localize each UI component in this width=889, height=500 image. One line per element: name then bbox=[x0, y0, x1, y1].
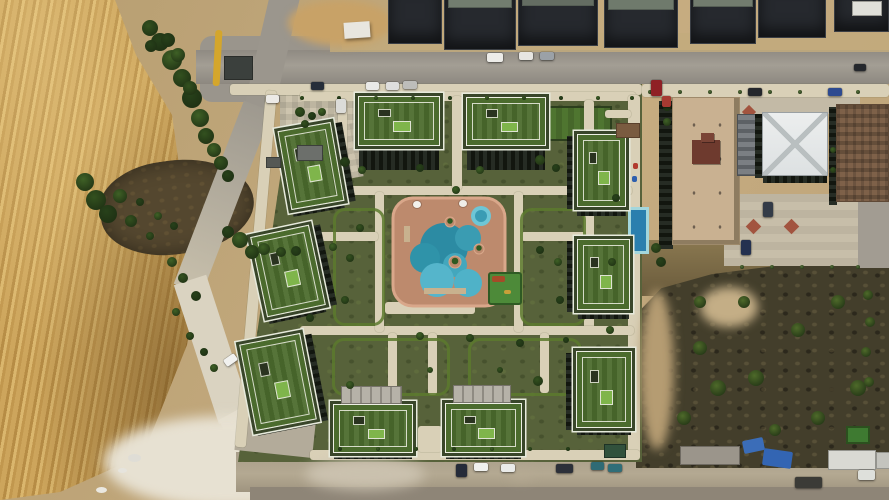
tree bbox=[191, 291, 201, 301]
tree bbox=[411, 96, 415, 100]
tree bbox=[154, 212, 162, 220]
building-facade bbox=[359, 146, 439, 170]
building-facade bbox=[567, 241, 578, 312]
dirt-strip bbox=[640, 290, 674, 450]
tree bbox=[191, 109, 209, 127]
tree bbox=[770, 265, 774, 269]
pergola bbox=[616, 123, 640, 138]
tree bbox=[559, 96, 563, 100]
apartment-block-east-3 bbox=[576, 351, 632, 428]
car bbox=[266, 95, 279, 103]
island-palm-tree bbox=[476, 245, 482, 251]
scene-objects-layer bbox=[0, 0, 889, 500]
tree bbox=[414, 447, 418, 451]
tree bbox=[416, 164, 424, 172]
container bbox=[876, 452, 889, 469]
dumpster bbox=[604, 444, 626, 458]
city-block-2 bbox=[444, 0, 516, 50]
car bbox=[474, 463, 488, 471]
tree bbox=[811, 411, 825, 425]
tree bbox=[535, 155, 545, 165]
debris bbox=[118, 468, 127, 473]
tree bbox=[301, 120, 309, 128]
tan-roof bbox=[672, 97, 740, 245]
building-facade bbox=[763, 175, 828, 183]
tree bbox=[207, 143, 221, 157]
tree bbox=[476, 166, 484, 174]
tree bbox=[740, 265, 744, 269]
car bbox=[795, 477, 822, 488]
utility-box bbox=[266, 157, 281, 168]
debris bbox=[96, 487, 107, 493]
lap-pool bbox=[628, 207, 649, 254]
car bbox=[828, 88, 842, 96]
roof-penthouse-band bbox=[448, 0, 513, 8]
car bbox=[763, 202, 773, 217]
tree bbox=[170, 222, 178, 230]
tree bbox=[346, 254, 354, 262]
pallets bbox=[680, 446, 740, 465]
tree bbox=[338, 447, 342, 451]
apartment-block-east-2 bbox=[577, 239, 630, 310]
tree bbox=[452, 447, 456, 451]
tree bbox=[183, 81, 197, 95]
tree bbox=[556, 296, 564, 304]
tree bbox=[830, 265, 834, 269]
car bbox=[501, 464, 515, 472]
tree bbox=[864, 377, 874, 387]
tree bbox=[374, 96, 378, 100]
tree bbox=[99, 205, 117, 223]
utility-box bbox=[297, 145, 323, 161]
roof-penthouse-band bbox=[522, 0, 594, 6]
tree bbox=[651, 243, 661, 253]
play-structure bbox=[492, 276, 505, 282]
tree bbox=[356, 224, 364, 232]
tree bbox=[76, 173, 94, 191]
tree bbox=[427, 367, 433, 373]
tree bbox=[516, 339, 524, 347]
green-roof bbox=[333, 404, 413, 453]
tree bbox=[748, 370, 764, 386]
building-facade bbox=[566, 353, 577, 430]
tree bbox=[376, 447, 380, 451]
tree bbox=[830, 167, 836, 173]
green-roof bbox=[466, 97, 546, 146]
hip-roof bbox=[762, 112, 828, 176]
tree bbox=[146, 232, 154, 240]
car bbox=[858, 470, 875, 480]
tree bbox=[485, 96, 489, 100]
tree bbox=[738, 90, 742, 94]
dust bbox=[305, 458, 425, 490]
red-item bbox=[633, 163, 638, 169]
tree bbox=[528, 447, 532, 451]
tree bbox=[710, 380, 726, 396]
blue-item bbox=[632, 176, 637, 182]
car bbox=[456, 464, 467, 477]
car bbox=[336, 99, 346, 113]
tree bbox=[708, 90, 712, 94]
building-facade bbox=[578, 309, 630, 319]
play-structure bbox=[504, 290, 511, 294]
apartment-block-south-2 bbox=[445, 403, 522, 453]
building-facade bbox=[334, 453, 412, 459]
tree bbox=[232, 232, 248, 248]
brown-roof bbox=[836, 104, 889, 202]
car bbox=[519, 52, 533, 60]
tree bbox=[222, 226, 234, 238]
tree bbox=[276, 247, 286, 257]
garden-plot bbox=[846, 426, 870, 444]
dark-roof bbox=[758, 0, 826, 38]
dirt-patch bbox=[700, 287, 758, 327]
tree bbox=[798, 90, 802, 94]
loungers bbox=[404, 226, 410, 242]
dark-roof bbox=[388, 0, 442, 44]
car bbox=[366, 82, 379, 90]
tree bbox=[694, 296, 706, 308]
car bbox=[608, 464, 622, 472]
white-hip-roof-building bbox=[762, 112, 828, 176]
tree bbox=[630, 96, 634, 100]
tree bbox=[536, 246, 544, 254]
roof-box bbox=[852, 1, 882, 16]
tree bbox=[346, 381, 354, 389]
tree bbox=[452, 186, 460, 194]
tree bbox=[214, 156, 228, 170]
tree bbox=[656, 257, 666, 267]
tree bbox=[522, 96, 526, 100]
roof-penthouse-band bbox=[693, 0, 752, 7]
tree bbox=[768, 90, 772, 94]
tree bbox=[416, 332, 424, 340]
city-block-6 bbox=[758, 0, 826, 38]
tree bbox=[596, 96, 600, 100]
tree bbox=[341, 296, 349, 304]
tree bbox=[856, 90, 860, 94]
tree bbox=[831, 295, 845, 309]
tree bbox=[222, 170, 234, 182]
tree bbox=[663, 118, 671, 126]
tree bbox=[300, 96, 304, 100]
tree bbox=[566, 447, 570, 451]
debris bbox=[128, 454, 141, 462]
green-roof bbox=[358, 96, 440, 146]
tree bbox=[258, 243, 270, 255]
office-building bbox=[672, 97, 740, 245]
tree bbox=[533, 376, 543, 386]
tree bbox=[200, 348, 208, 356]
aerial-photo-canvas bbox=[0, 0, 889, 500]
tree bbox=[125, 215, 137, 227]
car bbox=[403, 81, 417, 89]
red-roof bbox=[692, 140, 720, 164]
tree bbox=[554, 258, 562, 266]
umbrella bbox=[413, 201, 421, 208]
green-roof bbox=[577, 239, 630, 310]
tree bbox=[738, 296, 750, 308]
tree bbox=[171, 48, 185, 62]
tree bbox=[497, 367, 503, 373]
tree bbox=[769, 424, 781, 436]
tree bbox=[172, 308, 180, 316]
island-palm-tree bbox=[447, 218, 453, 224]
building-facade bbox=[577, 206, 625, 216]
red-roof bbox=[701, 133, 714, 142]
tree bbox=[863, 290, 873, 300]
city-block-1 bbox=[388, 0, 442, 44]
tree bbox=[178, 273, 188, 283]
apartment-block-south-1 bbox=[333, 404, 413, 453]
swimming-pool-lobe bbox=[475, 210, 487, 222]
apartment-block-top-1 bbox=[358, 96, 440, 146]
tree bbox=[800, 265, 804, 269]
tree bbox=[856, 265, 860, 269]
car bbox=[386, 82, 399, 90]
building-facade bbox=[567, 136, 578, 209]
city-block-3 bbox=[518, 0, 598, 46]
green-roof bbox=[445, 403, 522, 453]
tree bbox=[563, 337, 569, 343]
tree bbox=[210, 364, 218, 372]
tree bbox=[608, 258, 616, 266]
umbrella bbox=[459, 200, 467, 207]
building-facade bbox=[577, 427, 632, 435]
roof-penthouse-band bbox=[608, 0, 675, 10]
tree bbox=[136, 198, 144, 206]
car bbox=[662, 96, 671, 107]
tree bbox=[308, 112, 316, 120]
tree bbox=[830, 147, 836, 153]
tree bbox=[291, 246, 301, 256]
tree bbox=[466, 334, 474, 342]
container bbox=[828, 450, 876, 470]
tree bbox=[693, 341, 707, 355]
car bbox=[311, 82, 324, 90]
tree bbox=[358, 166, 366, 174]
tree bbox=[161, 33, 175, 47]
tree bbox=[865, 317, 875, 327]
tree bbox=[552, 164, 560, 172]
car bbox=[540, 52, 554, 60]
tree bbox=[167, 257, 177, 267]
tree bbox=[329, 243, 337, 251]
tree bbox=[318, 108, 326, 116]
island-palm-tree bbox=[452, 258, 459, 265]
tree bbox=[606, 326, 614, 334]
tree bbox=[791, 323, 805, 337]
loungers bbox=[424, 288, 466, 294]
tree bbox=[677, 411, 691, 425]
dark-roof bbox=[518, 0, 598, 46]
car bbox=[854, 64, 866, 71]
tree bbox=[306, 314, 314, 322]
tree bbox=[340, 157, 350, 167]
tree bbox=[448, 96, 452, 100]
city-block-4 bbox=[604, 0, 678, 48]
tree bbox=[145, 40, 157, 52]
apartment-block-top-2 bbox=[466, 97, 546, 146]
green-roof bbox=[576, 351, 632, 428]
car bbox=[556, 464, 573, 473]
car bbox=[651, 80, 662, 96]
tree bbox=[612, 194, 620, 202]
car bbox=[748, 88, 762, 96]
tree bbox=[245, 245, 259, 259]
brown-building bbox=[836, 104, 889, 202]
car bbox=[591, 462, 604, 470]
tree bbox=[186, 332, 194, 340]
tree bbox=[295, 107, 305, 117]
car bbox=[487, 53, 503, 62]
tree bbox=[678, 90, 682, 94]
building-facade bbox=[446, 453, 521, 459]
city-block-5 bbox=[690, 0, 756, 44]
tree bbox=[198, 128, 214, 144]
balcony-grid bbox=[453, 385, 512, 403]
tree bbox=[490, 447, 494, 451]
car bbox=[741, 240, 751, 255]
tree bbox=[113, 189, 127, 203]
tree bbox=[861, 347, 871, 357]
